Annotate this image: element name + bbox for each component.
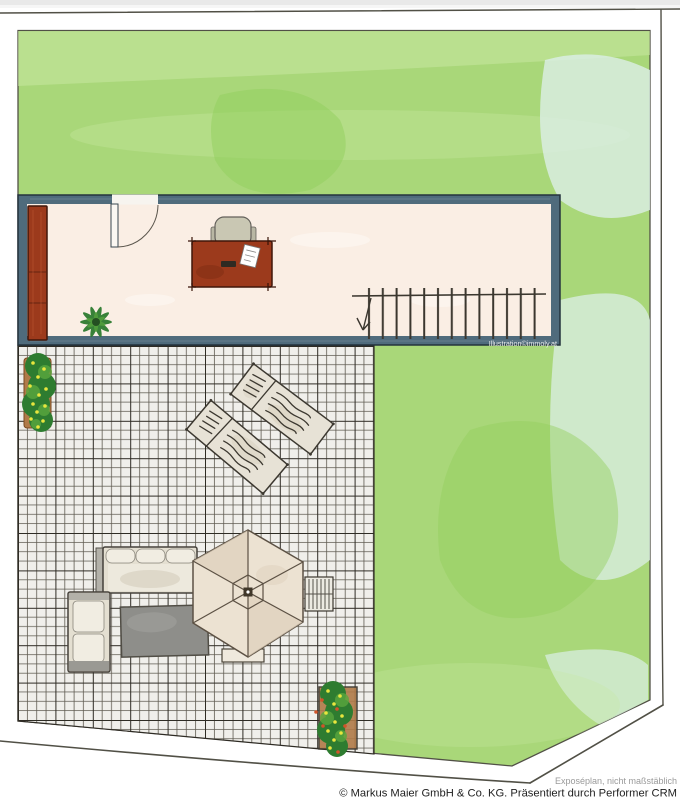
floorplan-page: Illustration©immoly.at Exposéplan, nicht… <box>0 0 680 800</box>
copyright-line: © Markus Maier GmbH & Co. KG. Präsentier… <box>339 788 677 800</box>
desk-keyboard <box>221 261 236 267</box>
wardrobe <box>28 206 47 340</box>
corner-bench <box>68 592 110 672</box>
floor-plan-illustration: Illustration©immoly.at Exposéplan, nicht… <box>0 0 680 800</box>
flower-pot-top <box>22 353 56 432</box>
interior-room: Illustration©immoly.at <box>18 195 560 349</box>
folding-chair <box>305 577 333 611</box>
desk <box>188 237 276 291</box>
garden-sofa <box>96 547 197 593</box>
illustration-credit: Illustration©immoly.at <box>489 339 557 348</box>
page-top-shadow <box>0 0 680 8</box>
staircase <box>352 288 546 339</box>
scale-disclaimer: Exposéplan, nicht maßstäblich <box>555 776 677 786</box>
flower-pot-bottom <box>314 681 357 757</box>
